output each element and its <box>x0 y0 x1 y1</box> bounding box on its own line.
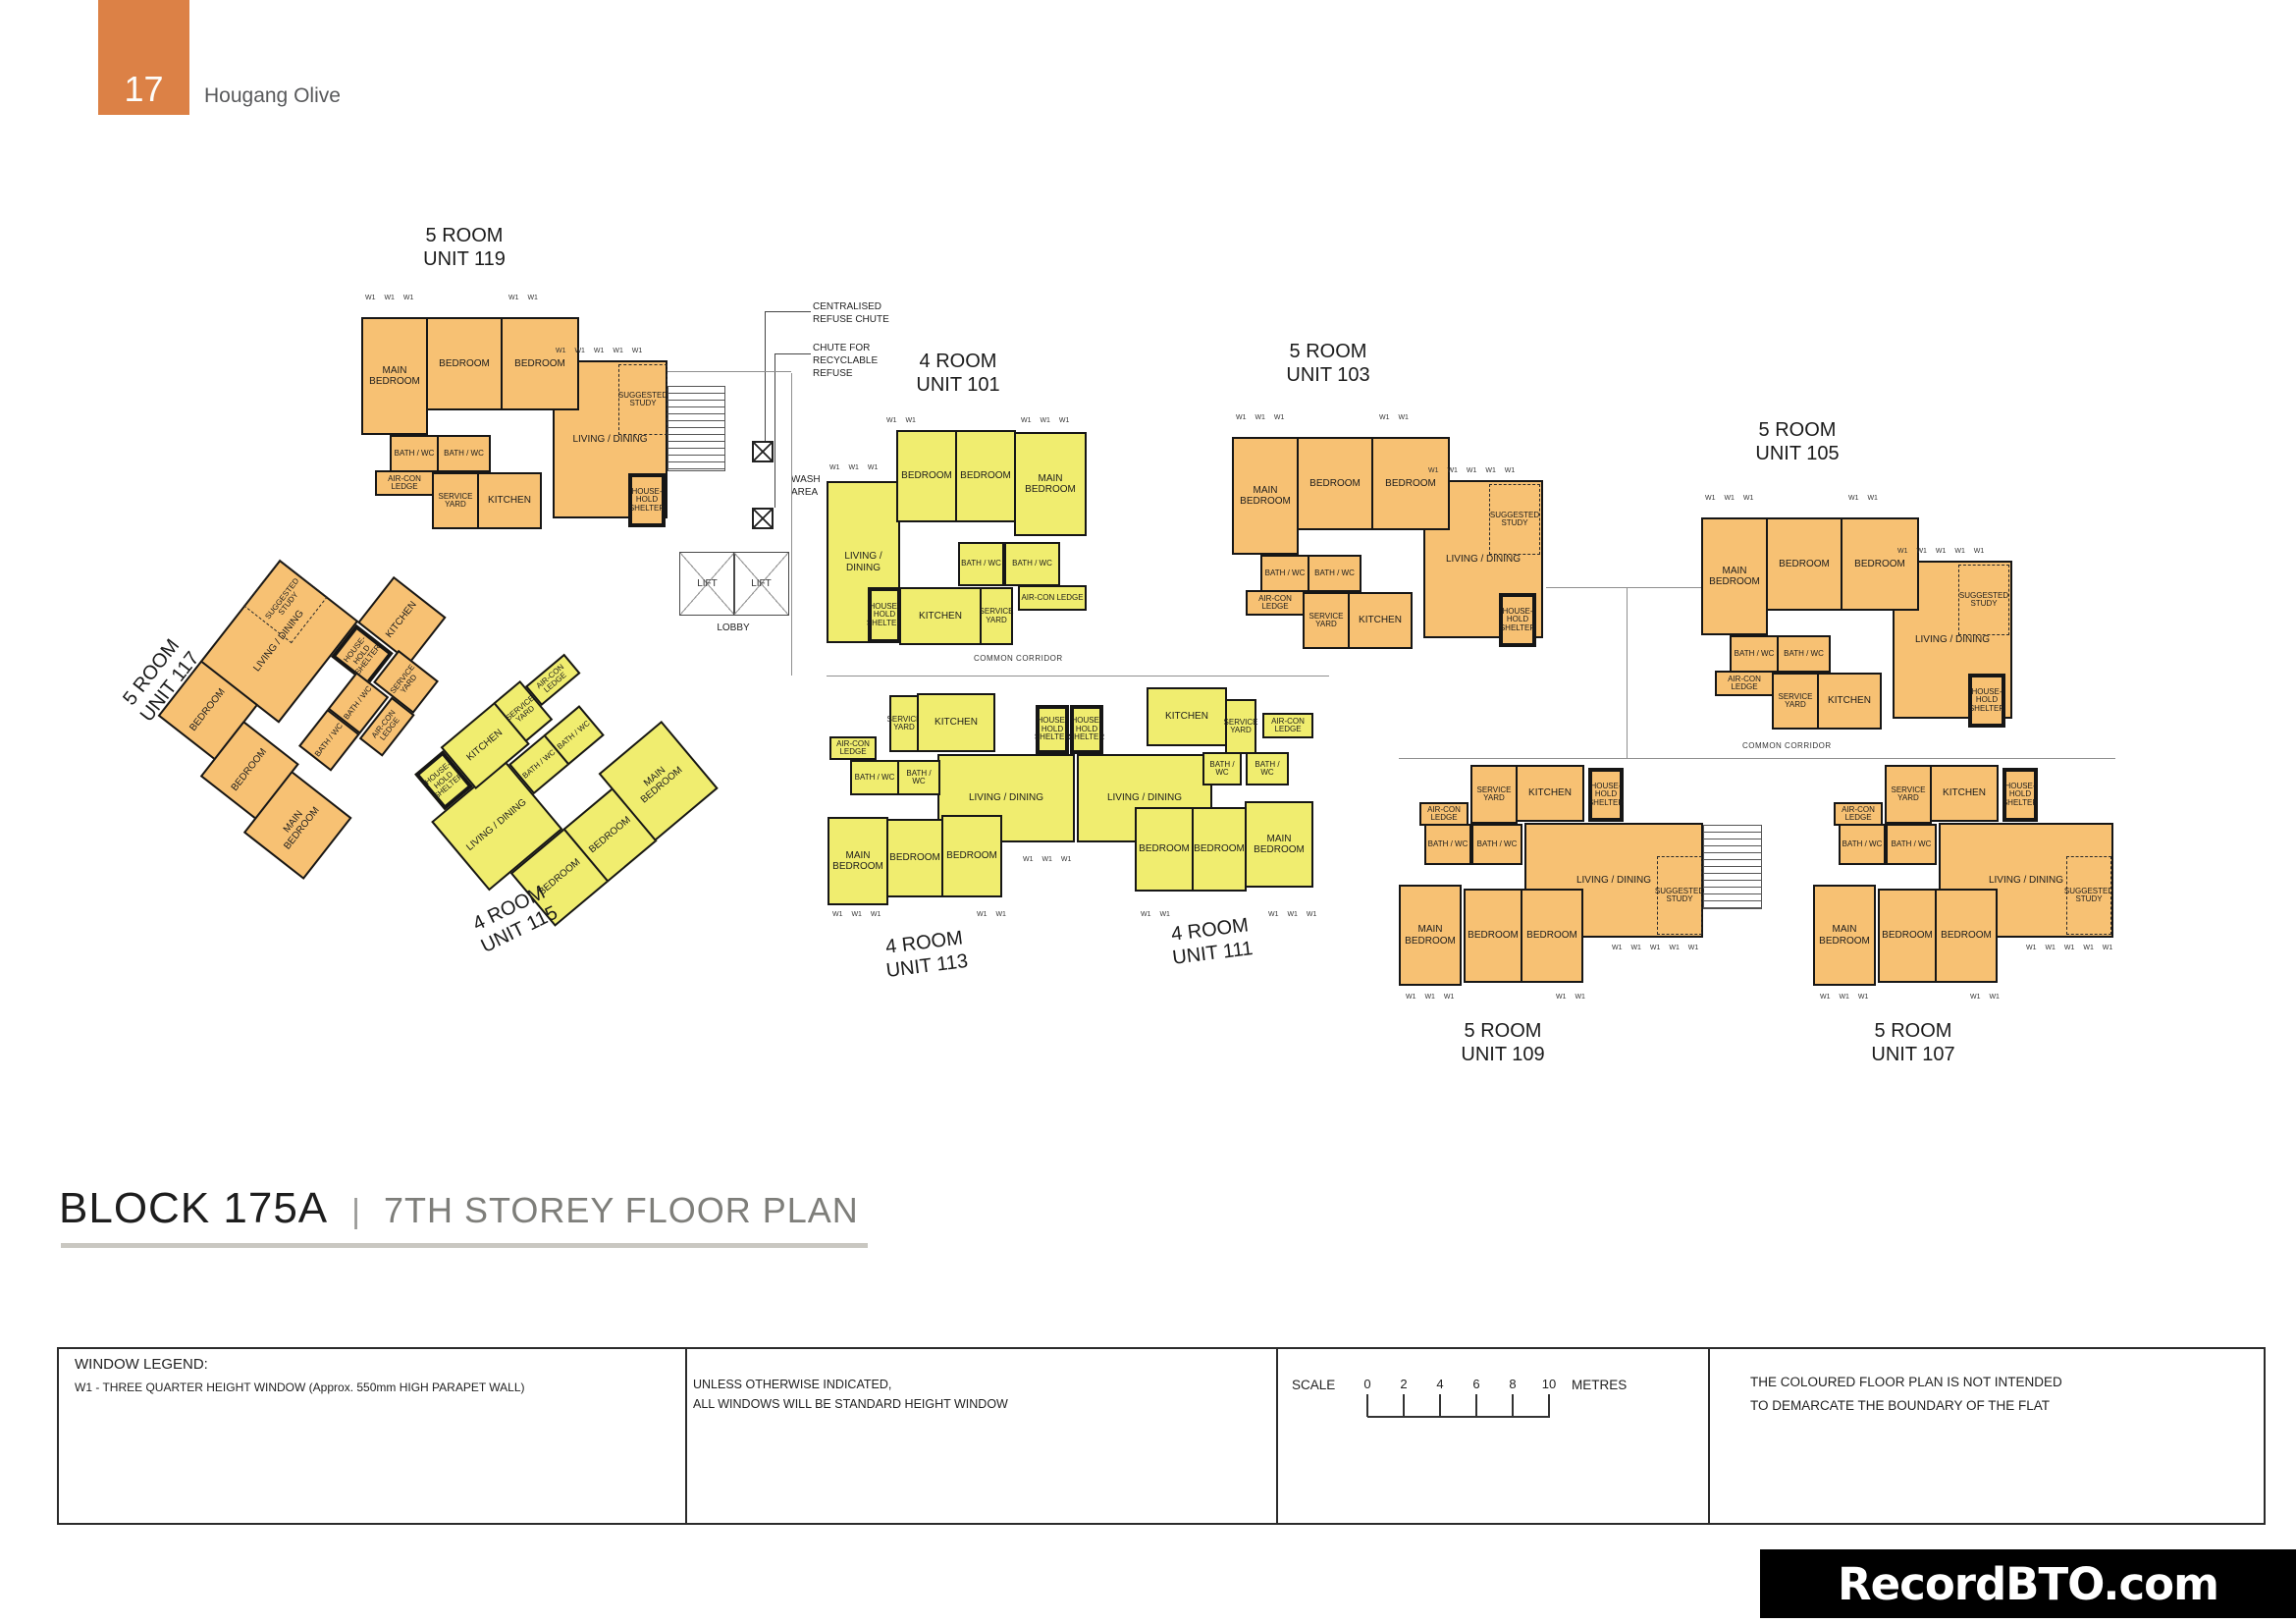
lift-label: LIFT <box>751 578 772 589</box>
room-household-shelter: HOUSE-HOLD SHELTER <box>1968 674 2005 728</box>
room-bedroom: BEDROOM <box>1135 807 1194 892</box>
room-main-bedroom: MAIN BEDROOM <box>361 317 428 435</box>
room-main-bedroom: MAIN BEDROOM <box>1232 437 1299 555</box>
disclaimer-line1: THE COLOURED FLOOR PLAN IS NOT INTENDED <box>1750 1375 2062 1389</box>
leader-line <box>765 311 811 312</box>
room-suggested-study: SUGGESTED STUDY <box>1489 484 1540 555</box>
window-marker-w1: W1 W1 <box>508 295 538 301</box>
room-service-yard: SERVICE YARD <box>432 472 479 529</box>
storey-title: 7TH STOREY FLOOR PLAN <box>384 1190 859 1231</box>
unit-title-103: 5 ROOM UNIT 103 <box>1244 340 1413 388</box>
room-kitchen: KITCHEN <box>477 472 542 529</box>
lobby-label: LOBBY <box>689 622 777 634</box>
page-number: 17 <box>124 72 163 115</box>
room-household-shelter: HOUSE-HOLD SHELTER <box>628 473 666 527</box>
room-main-bedroom: MAIN BEDROOM <box>1245 801 1313 888</box>
room-household-shelter: HOUSE-HOLD SHELTER <box>1070 705 1103 754</box>
title-underline <box>61 1243 868 1248</box>
page-number-tab: 17 <box>98 0 189 115</box>
window-marker-w1: W1 W1 <box>1970 994 2000 1001</box>
room-household-shelter: HOUSE-HOLD SHELTER <box>1499 593 1536 647</box>
room-kitchen: KITCHEN <box>1147 687 1227 746</box>
scale-bar <box>1367 1416 1550 1418</box>
room-suggested-study: SUGGESTED STUDY <box>1657 856 1702 935</box>
room-suggested-study: SUGGESTED STUDY <box>2066 856 2111 935</box>
room-main-bedroom: MAIN BEDROOM <box>1014 432 1087 536</box>
room-service-yard: SERVICE YARD <box>1225 699 1256 754</box>
corridor-line <box>1399 758 2115 759</box>
room-aircon-ledge: AIR-CON LEDGE <box>1018 585 1087 611</box>
window-marker-w1: W1 W1 W1 <box>1406 994 1454 1001</box>
room-bath-wc: BATH / WC <box>897 760 940 795</box>
unit-title-107: 5 ROOM UNIT 107 <box>1829 1019 1998 1067</box>
centralised-refuse-chute-label: CENTRALISED REFUSE CHUTE <box>813 300 889 326</box>
scale-tick <box>1475 1394 1477 1417</box>
room-main-bedroom: MAIN BEDROOM <box>828 817 888 905</box>
scale-tick <box>1403 1394 1405 1417</box>
scale-tick-label: 10 <box>1542 1377 1556 1391</box>
room-bath-wc: BATH / WC <box>1839 824 1886 865</box>
unit-title-111: 4 ROOM UNIT 111 <box>1125 908 1299 976</box>
scale-tick-label: 8 <box>1509 1377 1516 1391</box>
room-aircon-ledge: AIR-CON LEDGE <box>1715 671 1774 696</box>
scale-tick <box>1366 1394 1368 1417</box>
room-aircon-ledge: AIR-CON LEDGE <box>1262 713 1313 738</box>
unit-title-105: 5 ROOM UNIT 105 <box>1713 418 1882 466</box>
corridor-line <box>1546 587 1703 588</box>
room-bedroom: BEDROOM <box>886 819 943 897</box>
room-bath-wc: BATH / WC <box>850 760 899 795</box>
room-bedroom: BEDROOM <box>1935 889 1998 983</box>
leader-line <box>765 311 766 441</box>
room-aircon-ledge: AIR-CON LEDGE <box>829 736 877 760</box>
window-marker-w1: W1 W1 W1 <box>1820 994 1868 1001</box>
room-bedroom: BEDROOM <box>1371 437 1450 530</box>
room-service-yard: SERVICE YARD <box>1772 673 1819 730</box>
room-bedroom: BEDROOM <box>426 317 503 410</box>
room-household-shelter: HOUSE-HOLD SHELTER <box>1036 705 1069 754</box>
room-bath-wc: BATH / WC <box>1246 752 1289 785</box>
window-marker-w1: W1 W1 W1 W1 W1 <box>1612 945 1698 951</box>
leader-line <box>774 353 775 508</box>
room-bath-wc: BATH / WC <box>1308 555 1362 592</box>
room-bedroom: BEDROOM <box>941 815 1002 897</box>
project-name: Hougang Olive <box>204 84 341 108</box>
common-corridor-label: COMMON CORRIDOR <box>1742 741 1832 750</box>
room-kitchen: KITCHEN <box>1516 765 1584 822</box>
room-bath-wc: BATH / WC <box>1424 824 1471 865</box>
legend-divider <box>1276 1347 1278 1525</box>
recyclable-chute-icon <box>752 508 774 529</box>
window-marker-w1: W1 W1 <box>886 417 916 424</box>
window-marker-w1: W1 W1 <box>977 911 1006 918</box>
window-marker-w1: W1 W1 W1 <box>1236 414 1284 421</box>
room-service-yard: SERVICE YARD <box>1470 765 1518 824</box>
title-separator: | <box>351 1193 360 1231</box>
windows-note-line1: UNLESS OTHERWISE INDICATED, <box>693 1378 891 1391</box>
room-bath-wc: BATH / WC <box>390 435 439 472</box>
room-bedroom: BEDROOM <box>1521 889 1583 983</box>
room-suggested-study: SUGGESTED STUDY <box>1958 565 2009 635</box>
common-corridor-label: COMMON CORRIDOR <box>974 654 1063 663</box>
room-bath-wc: BATH / WC <box>1202 752 1242 785</box>
refuse-chute-icon <box>752 441 774 462</box>
lift-box: LIFT <box>679 552 735 616</box>
room-main-bedroom: MAIN BEDROOM <box>1701 517 1768 635</box>
room-suggested-study: SUGGESTED STUDY <box>618 364 667 435</box>
window-marker-w1: W1 W1 <box>1556 994 1585 1001</box>
wash-area-label: WASH AREA <box>791 473 821 499</box>
room-main-bedroom: MAIN BEDROOM <box>1399 885 1462 986</box>
window-marker-w1: W1 W1 W1 <box>1021 417 1069 424</box>
room-aircon-ledge: AIR-CON LEDGE <box>375 470 434 496</box>
window-marker-w1: W1 W1 W1 W1 W1 <box>2026 945 2112 951</box>
room-bath-wc: BATH / WC <box>958 542 1004 586</box>
watermark-text: RecordBTO.com <box>1838 1558 2218 1610</box>
room-bedroom: BEDROOM <box>1464 889 1522 983</box>
scale-tick <box>1548 1394 1550 1417</box>
room-bedroom: BEDROOM <box>1192 807 1247 892</box>
legend-divider <box>685 1347 687 1525</box>
scale-tick-label: 6 <box>1472 1377 1479 1391</box>
room-kitchen: KITCHEN <box>1930 765 1999 822</box>
corridor-line <box>827 676 1329 677</box>
unit-title-113: 4 ROOM UNIT 113 <box>839 921 1013 989</box>
room-bedroom: BEDROOM <box>955 430 1016 522</box>
room-service-yard: SERVICE YARD <box>1885 765 1932 824</box>
window-legend-heading: WINDOW LEGEND: <box>75 1356 208 1373</box>
room-bedroom: BEDROOM <box>1841 517 1919 611</box>
scale-tick <box>1439 1394 1441 1417</box>
scale-tick <box>1512 1394 1514 1417</box>
leader-line <box>774 353 811 354</box>
window-marker-w1: W1 W1 W1 W1 W1 <box>556 348 642 354</box>
unit-title-101: 4 ROOM UNIT 101 <box>874 350 1042 398</box>
block-title: BLOCK 175A <box>59 1184 328 1233</box>
room-bedroom: BEDROOM <box>896 430 957 522</box>
floor-plan-page: 17 Hougang Olive CENTRALISED REFUSE CHUT… <box>0 0 2296 1624</box>
room-bath-wc: BATH / WC <box>437 435 491 472</box>
window-marker-w1: W1 W1 W1 W1 W1 <box>1897 548 1984 555</box>
room-bedroom: BEDROOM <box>501 317 579 410</box>
window-marker-w1: W1 W1 <box>1379 414 1409 421</box>
room-bath-wc: BATH / WC <box>1886 824 1937 865</box>
unit-title-109: 5 ROOM UNIT 109 <box>1418 1019 1587 1067</box>
room-bath-wc: BATH / WC <box>1777 635 1831 673</box>
room-main-bedroom: MAIN BEDROOM <box>1813 885 1876 986</box>
scale-unit-label: METRES <box>1572 1378 1627 1392</box>
room-bedroom: BEDROOM <box>1297 437 1373 530</box>
room-household-shelter: HOUSE-HOLD SHELTER <box>2002 768 2038 822</box>
scale-tick-label: 2 <box>1400 1377 1407 1391</box>
room-service-yard: SERVICE YARD <box>1303 592 1350 649</box>
recyclable-refuse-chute-label: CHUTE FOR RECYCLABLE REFUSE <box>813 342 878 380</box>
disclaimer-line2: TO DEMARCATE THE BOUNDARY OF THE FLAT <box>1750 1398 2050 1413</box>
unit-117: LIVING / DININGSUGGESTED STUDYBEDROOMBED… <box>133 514 485 880</box>
window-marker-w1: W1 W1 W1 <box>829 464 878 471</box>
staircase <box>1703 825 1762 909</box>
room-bath-wc: BATH / WC <box>1730 635 1779 673</box>
window-marker-w1: W1 W1 W1 <box>1268 911 1316 918</box>
staircase <box>667 386 725 471</box>
room-aircon-ledge: AIR-CON LEDGE <box>1419 802 1468 826</box>
scale-label: SCALE <box>1292 1378 1335 1392</box>
window-marker-w1: W1 W1 W1 <box>1705 495 1753 502</box>
room-bath-wc: BATH / WC <box>1004 542 1060 586</box>
window-marker-w1: W1 W1 W1 <box>832 911 881 918</box>
room-household-shelter: HOUSE-HOLD SHELTER <box>868 587 901 643</box>
watermark-banner: RecordBTO.com <box>1760 1549 2296 1618</box>
window-marker-w1: W1 W1 <box>1141 911 1170 918</box>
room-kitchen: KITCHEN <box>917 693 995 752</box>
window-marker-w1: W1 W1 W1 W1 W1 <box>1428 467 1515 474</box>
room-bedroom: BEDROOM <box>1766 517 1842 611</box>
window-legend-w1-note: W1 - THREE QUARTER HEIGHT WINDOW (Approx… <box>75 1380 525 1394</box>
lift-label: LIFT <box>697 578 718 589</box>
room-service-yard: SERVICE YARD <box>889 695 919 752</box>
window-marker-w1: W1 W1 W1 <box>365 295 413 301</box>
room-bath-wc: BATH / WC <box>1260 555 1309 592</box>
unit-title-119: 5 ROOM UNIT 119 <box>380 224 549 272</box>
lift-box: LIFT <box>733 552 789 616</box>
corridor-line <box>791 373 792 676</box>
room-bedroom: BEDROOM <box>1878 889 1937 983</box>
scale-tick-label: 0 <box>1363 1377 1370 1391</box>
room-kitchen: KITCHEN <box>1817 673 1882 730</box>
room-aircon-ledge: AIR-CON LEDGE <box>1834 802 1883 826</box>
legend-divider <box>1708 1347 1710 1525</box>
window-marker-w1: W1 W1 <box>1848 495 1878 502</box>
room-kitchen: KITCHEN <box>1348 592 1413 649</box>
room-aircon-ledge: AIR-CON LEDGE <box>1246 590 1305 616</box>
corridor-line <box>1627 587 1628 758</box>
scale-tick-label: 4 <box>1436 1377 1443 1391</box>
window-marker-w1: W1 W1 W1 <box>1023 856 1071 863</box>
room-kitchen: KITCHEN <box>899 587 982 645</box>
windows-note-line2: ALL WINDOWS WILL BE STANDARD HEIGHT WIND… <box>693 1397 1008 1411</box>
room-bath-wc: BATH / WC <box>1471 824 1522 865</box>
drawing-title: BLOCK 175A | 7TH STOREY FLOOR PLAN <box>59 1184 859 1233</box>
room-household-shelter: HOUSE-HOLD SHELTER <box>1588 768 1624 822</box>
room-service-yard: SERVICE YARD <box>980 587 1013 645</box>
